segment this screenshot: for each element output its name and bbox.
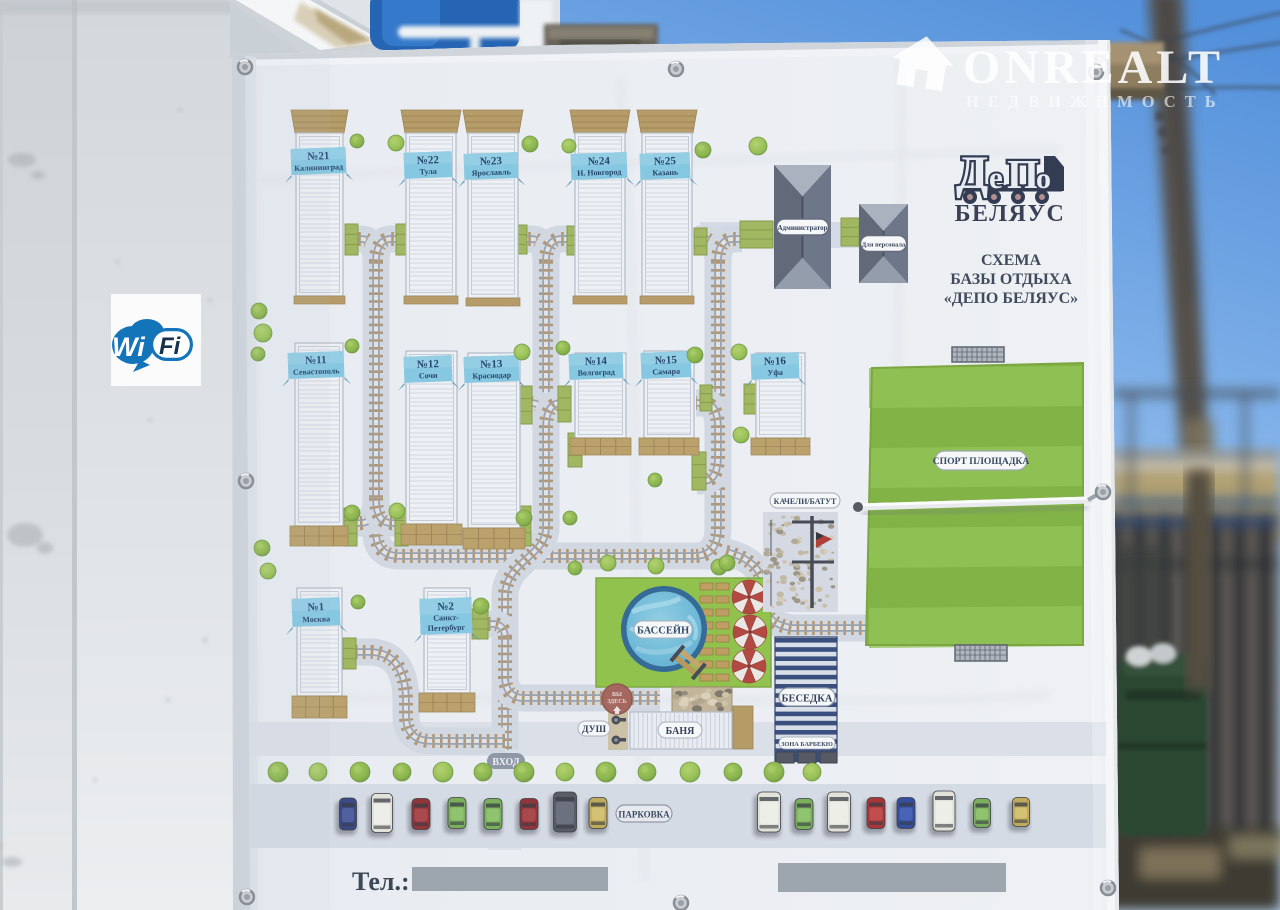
svg-text:НЕДВИЖИМОСТЬ: НЕДВИЖИМОСТЬ (966, 92, 1225, 111)
svg-text:Wi: Wi (112, 332, 145, 362)
svg-text:ONREALT: ONREALT (963, 41, 1224, 94)
svg-text:Fi: Fi (159, 333, 182, 360)
